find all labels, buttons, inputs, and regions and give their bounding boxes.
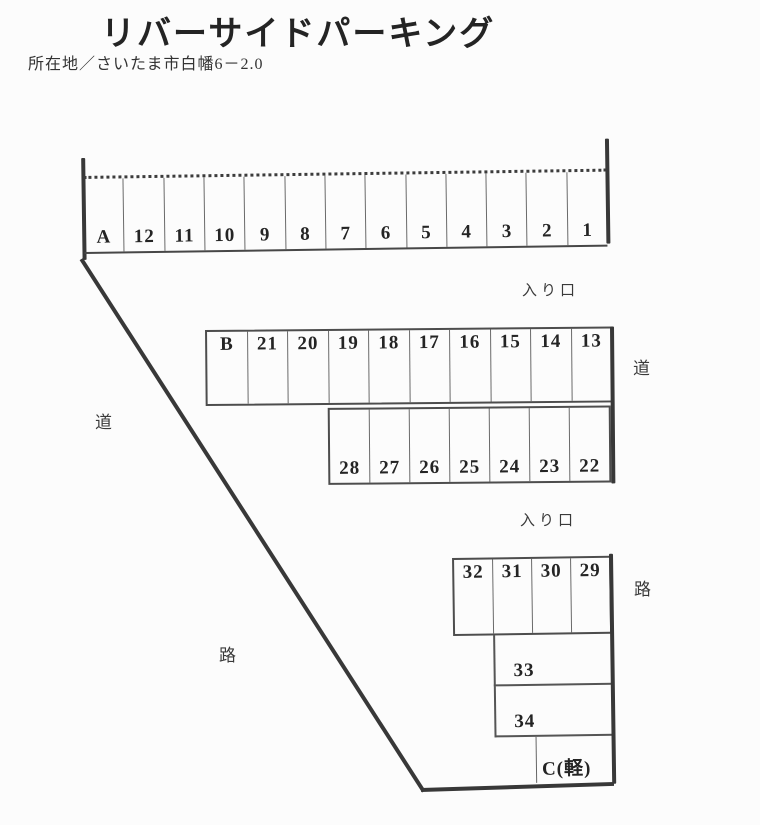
bottom-stall-row: 32313029	[452, 556, 612, 636]
parking-stall-3: 3	[486, 173, 527, 247]
road-label-right-upper: 道	[633, 354, 650, 379]
stall-label: 11	[174, 227, 194, 248]
stall-label: 26	[419, 458, 440, 479]
stall-label: 15	[500, 332, 521, 353]
stall-label: 17	[419, 333, 440, 354]
parking-stall-24: 24	[489, 408, 530, 481]
parking-stall-9: 9	[244, 176, 285, 250]
stall-label: 27	[379, 458, 400, 479]
parking-stall-23: 23	[529, 408, 570, 481]
parking-stall-27: 27	[369, 409, 410, 482]
parking-stall-B: B	[207, 332, 247, 404]
parking-stall-10: 10	[203, 177, 244, 251]
entrance-label-lower: 入り口	[520, 509, 577, 530]
parking-stall-11: 11	[163, 177, 204, 251]
parking-stall-4: 4	[445, 173, 486, 247]
parking-stall-33: 33	[493, 634, 613, 687]
stall-label: 22	[579, 457, 600, 478]
stall-label: 10	[214, 226, 235, 247]
stall-label: 8	[300, 225, 311, 246]
parking-stall-c-kei: C(軽)	[536, 736, 615, 783]
stall-label: 30	[541, 561, 562, 582]
parking-stall-19: 19	[328, 331, 369, 403]
parking-stall-25: 25	[449, 409, 490, 482]
parking-stall-14: 14	[530, 329, 571, 401]
parking-stall-22: 22	[569, 407, 610, 480]
parking-stall-A: A	[83, 178, 123, 252]
stall-label: 20	[297, 334, 318, 355]
parking-stall-13: 13	[571, 328, 612, 400]
middle-stall-row-upper: B212019181716151413	[205, 326, 614, 406]
stall-label: 13	[581, 332, 602, 353]
road-label-left-upper: 道	[95, 408, 112, 433]
parking-stall-32: 32	[454, 559, 493, 634]
parking-stall-6: 6	[365, 174, 406, 248]
stall-label: C(軽)	[542, 759, 592, 781]
parking-stall-21: 21	[247, 331, 288, 403]
entrance-label-upper: 入り口	[522, 279, 579, 300]
parking-stall-18: 18	[368, 330, 409, 402]
stall-label: 7	[340, 224, 351, 245]
middle-stall-block: B212019181716151413 28272625242322	[205, 324, 618, 490]
stall-label: 21	[257, 334, 278, 355]
top-stall-row: A121110987654321	[83, 169, 607, 254]
bottom-stall-block: 32313029 33 34 C(軽)	[452, 554, 617, 790]
parking-stall-34: 34	[494, 685, 614, 738]
stall-label: 34	[514, 712, 535, 733]
stall-label: 9	[260, 225, 271, 246]
stall-label: 5	[421, 223, 432, 244]
stall-label: 19	[338, 334, 359, 355]
stall-label: 4	[461, 223, 472, 244]
stall-label: 28	[339, 459, 360, 480]
right-boundary-line-middle	[610, 326, 615, 483]
middle-stall-row-lower: 28272625242322	[328, 405, 612, 484]
stall-label: 2	[542, 222, 553, 243]
parking-stall-26: 26	[409, 409, 450, 482]
stall-label: 14	[540, 332, 561, 353]
parking-stall-5: 5	[405, 174, 446, 248]
parking-stall-7: 7	[324, 175, 365, 249]
parking-stall-17: 17	[409, 330, 450, 402]
stall-label: 23	[539, 457, 560, 478]
stall-label: 12	[134, 227, 155, 248]
road-label-left-lower: 路	[219, 641, 236, 666]
top-stall-block: A121110987654321	[80, 139, 612, 258]
address-line: 所在地／さいたま市白幡6－2.0	[28, 50, 264, 74]
road-label-right-lower: 路	[634, 575, 651, 600]
stall-label: 18	[378, 333, 399, 354]
stall-label: 24	[499, 457, 520, 478]
parking-stall-30: 30	[531, 558, 571, 633]
parking-stall-8: 8	[284, 176, 325, 250]
page-title: リバーサイドパーキング	[101, 6, 495, 55]
stall-label: 25	[459, 458, 480, 479]
stall-label: 3	[502, 222, 513, 243]
stall-label: 32	[463, 563, 484, 584]
parking-layout-page: リバーサイドパーキング 所在地／さいたま市白幡6－2.0 A1211109876…	[0, 0, 760, 825]
parking-stall-31: 31	[492, 559, 532, 634]
stall-label: 6	[381, 224, 392, 245]
parking-stall-28: 28	[330, 410, 370, 483]
parking-stall-20: 20	[287, 331, 328, 403]
parking-stall-16: 16	[449, 330, 490, 402]
stall-label: B	[220, 335, 234, 356]
stall-label: 33	[513, 661, 534, 682]
parking-stall-15: 15	[490, 329, 531, 401]
parking-stall-1: 1	[566, 172, 607, 246]
parking-stall-2: 2	[526, 172, 567, 246]
stall-label: A	[96, 228, 111, 249]
stall-label: 29	[580, 561, 601, 582]
stall-label: 31	[502, 562, 523, 583]
parking-stall-29: 29	[570, 558, 610, 633]
stall-label: 16	[459, 333, 480, 354]
stall-label: 1	[582, 221, 593, 242]
parking-stall-12: 12	[123, 178, 164, 252]
